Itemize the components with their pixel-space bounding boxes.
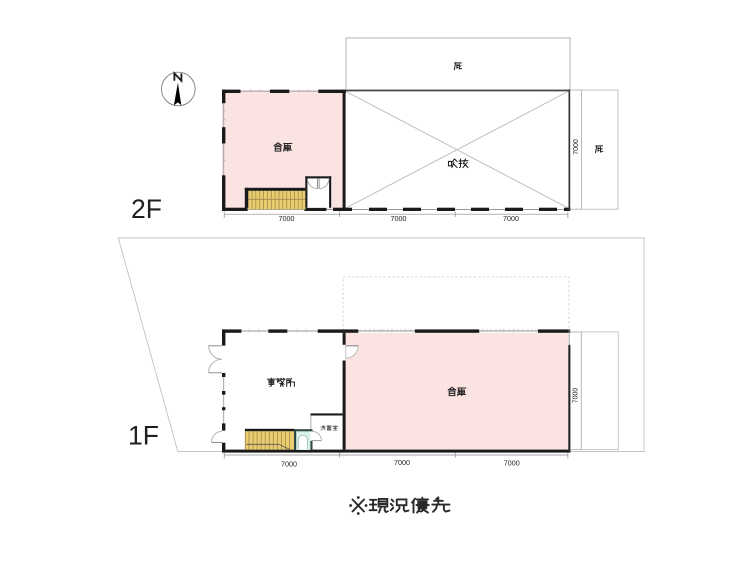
svg-text:7000: 7000: [504, 459, 520, 468]
svg-text:7000: 7000: [279, 214, 295, 223]
svg-text:7000: 7000: [573, 139, 580, 155]
svg-text:7000: 7000: [391, 214, 407, 223]
svg-text:1F: 1F: [128, 421, 159, 451]
svg-text:7000: 7000: [281, 459, 297, 468]
svg-text:7000: 7000: [394, 458, 410, 467]
svg-text:2F: 2F: [131, 194, 162, 224]
svg-text:7000: 7000: [503, 214, 519, 223]
svg-text:7000: 7000: [573, 388, 580, 404]
